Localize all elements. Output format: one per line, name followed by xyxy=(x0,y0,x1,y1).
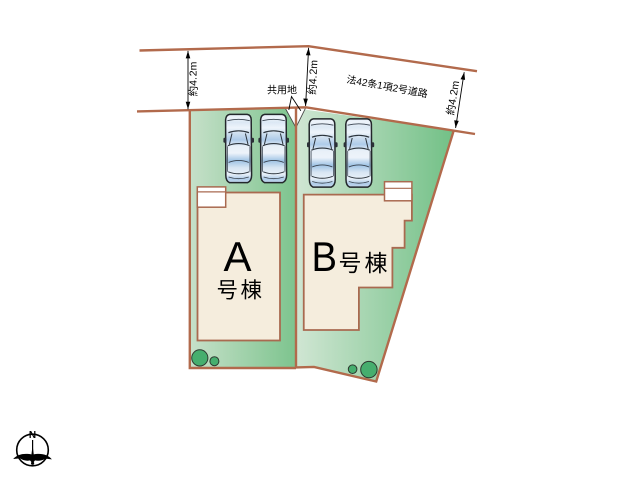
svg-text:号棟: 号棟 xyxy=(216,278,264,302)
svg-text:B: B xyxy=(312,233,338,280)
svg-text:約4. 2m: 約4. 2m xyxy=(187,61,200,96)
svg-text:法42条1項2号道路: 法42条1項2号道路 xyxy=(346,73,429,101)
svg-text:A: A xyxy=(223,233,251,280)
svg-text:共用地: 共用地 xyxy=(267,83,297,96)
svg-text:N: N xyxy=(29,430,36,441)
svg-text:号棟: 号棟 xyxy=(339,250,391,276)
svg-text:約4. 2m: 約4. 2m xyxy=(444,80,462,117)
svg-text:約4. 2m: 約4. 2m xyxy=(306,59,321,95)
